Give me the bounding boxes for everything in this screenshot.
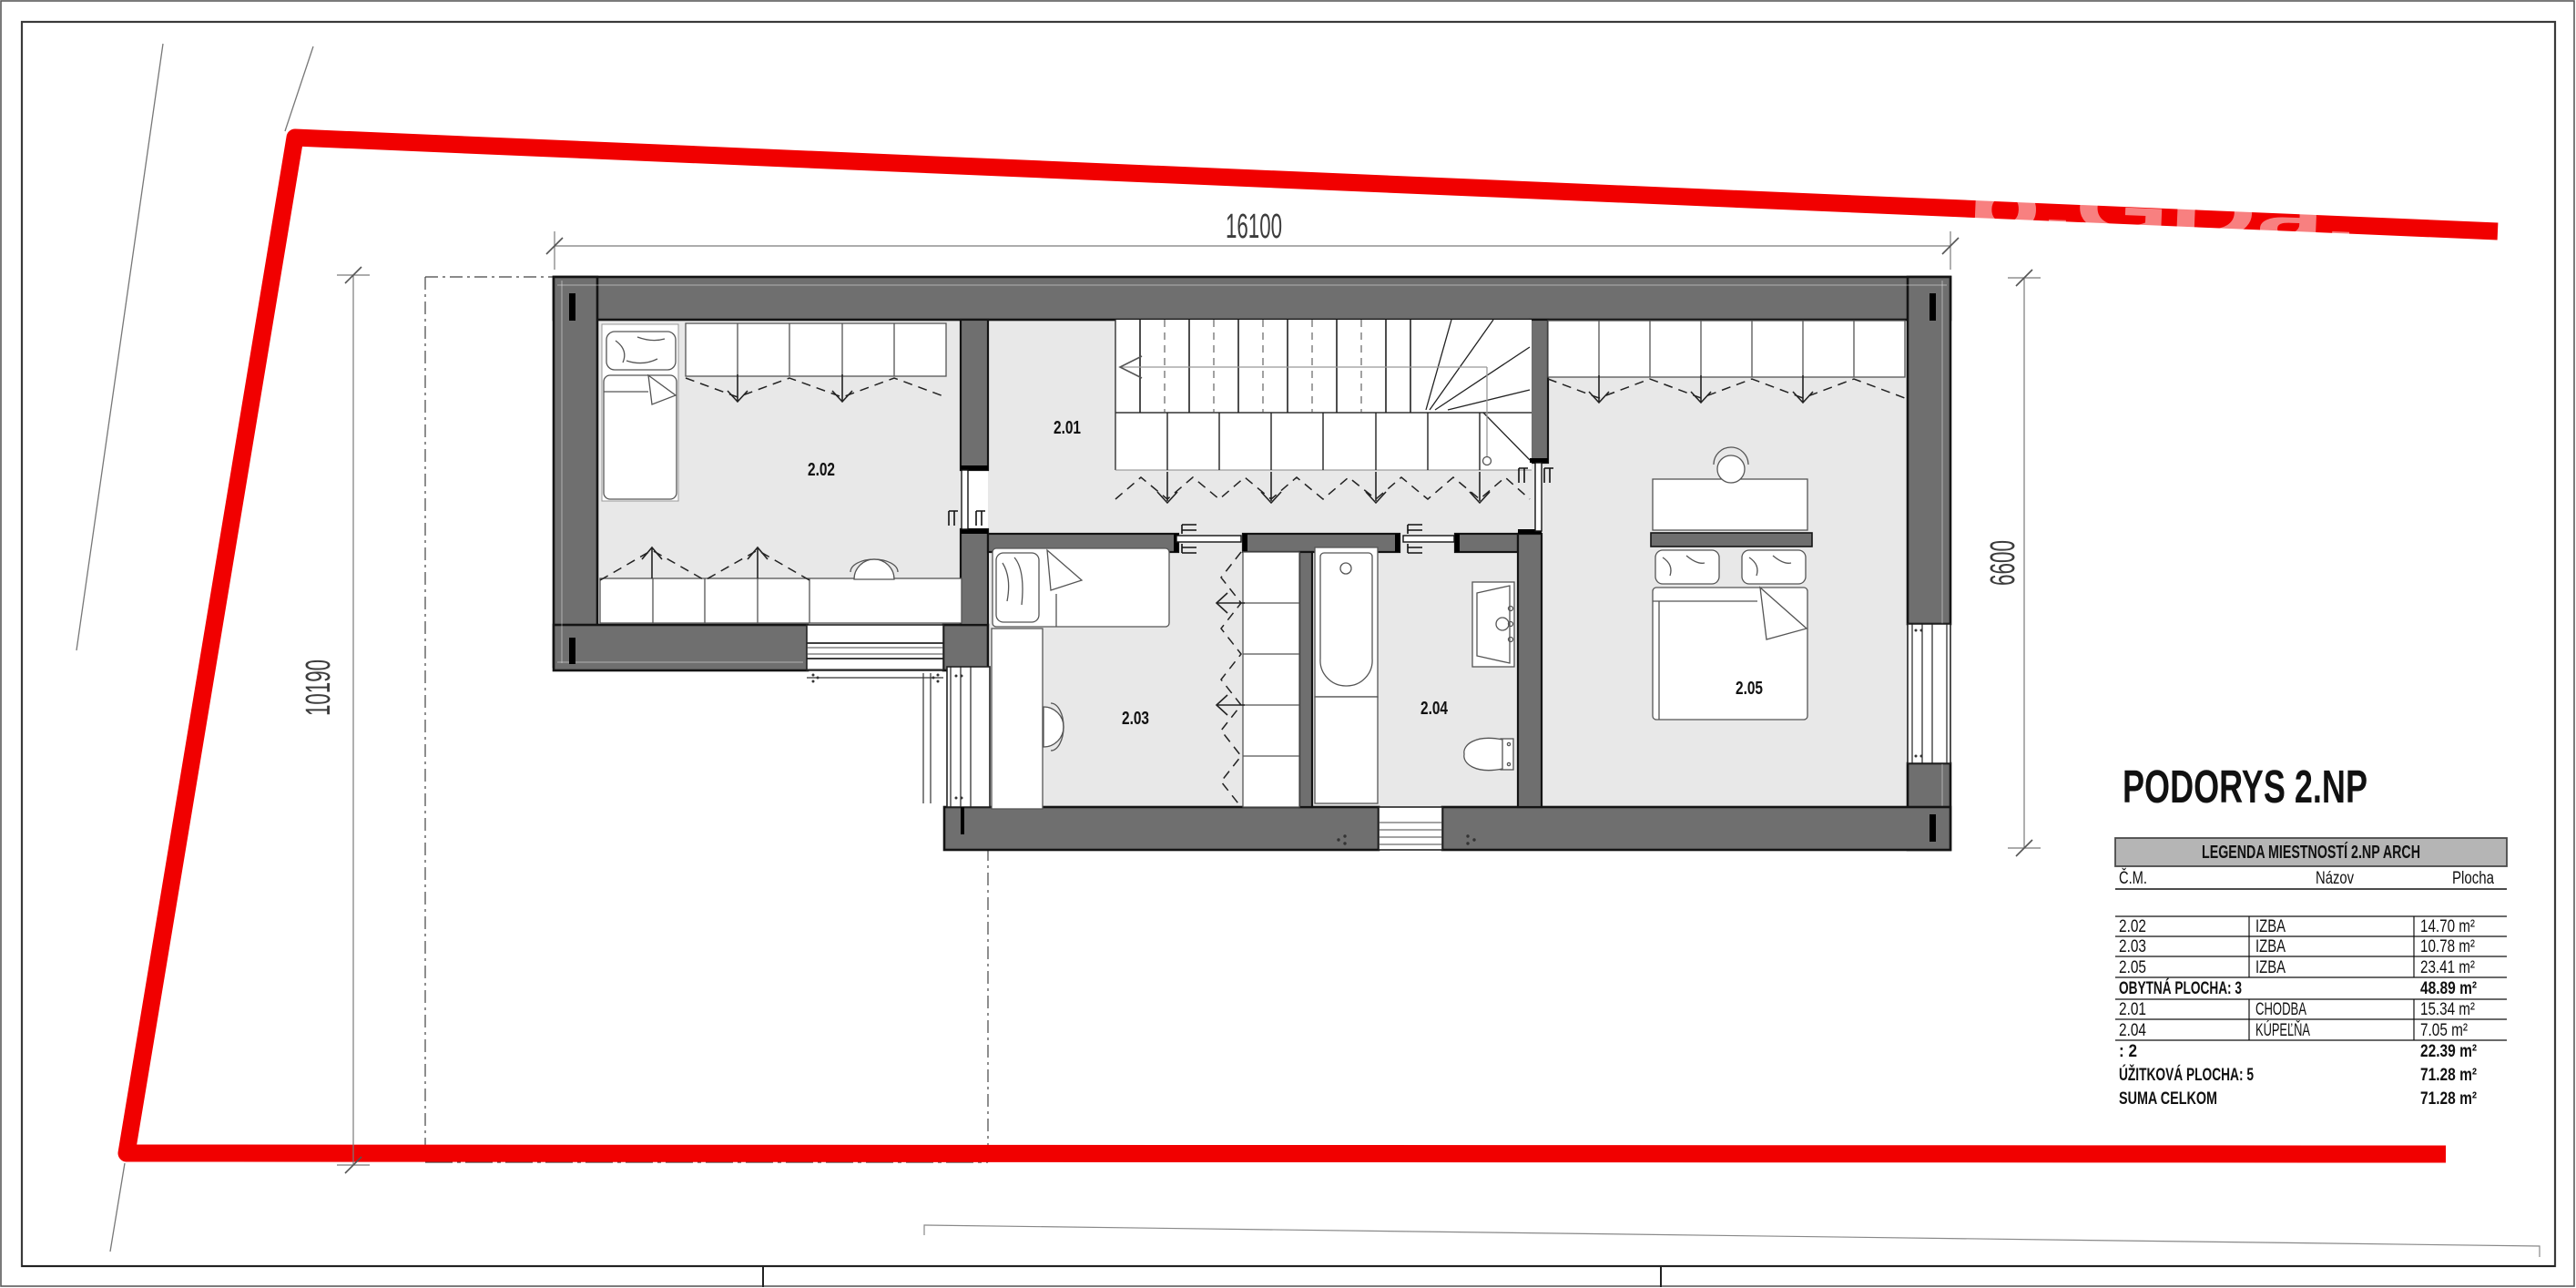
svg-text:SUMA CELKOM: SUMA CELKOM <box>2119 1089 2217 1109</box>
svg-text:2.03: 2.03 <box>1122 709 1149 729</box>
svg-text:IZBA: IZBA <box>2255 937 2286 956</box>
svg-text:48.89 m²: 48.89 m² <box>2420 979 2477 998</box>
svg-text:2.05: 2.05 <box>1736 679 1763 699</box>
svg-text:Plocha: Plocha <box>2452 869 2494 888</box>
svg-text:2.05: 2.05 <box>2119 958 2146 977</box>
svg-text:2.02: 2.02 <box>808 460 835 480</box>
svg-text:OBYTNÁ PLOCHA: 3: OBYTNÁ PLOCHA: 3 <box>2119 978 2242 998</box>
svg-text:2.01: 2.01 <box>2119 1000 2146 1019</box>
svg-text:2.02: 2.02 <box>2119 917 2146 936</box>
svg-text:ÚŽITKOVÁ PLOCHA: 5: ÚŽITKOVÁ PLOCHA: 5 <box>2119 1065 2254 1085</box>
svg-text:LEGENDA MIESTNOSTÍ 2.NP ARCH: LEGENDA MIESTNOSTÍ 2.NP ARCH <box>2202 842 2420 863</box>
svg-text:15.34 m²: 15.34 m² <box>2420 1000 2475 1019</box>
svg-text:2.04: 2.04 <box>2119 1021 2146 1040</box>
svg-text:IZBA: IZBA <box>2255 917 2286 936</box>
svg-text:6600: 6600 <box>1984 540 2022 586</box>
svg-text:PODORYS 2.NP: PODORYS 2.NP <box>2123 761 2367 813</box>
svg-text:b.GDa.: b.GDa. <box>1965 162 2359 259</box>
svg-text:Č.M.: Č.M. <box>2119 868 2147 888</box>
svg-text:Názov: Názov <box>2316 869 2354 888</box>
svg-text:10.78 m²: 10.78 m² <box>2420 937 2475 956</box>
svg-text:16100: 16100 <box>1226 208 1282 246</box>
svg-text:2.03: 2.03 <box>2119 937 2146 956</box>
svg-text:71.28 m²: 71.28 m² <box>2420 1089 2477 1109</box>
svg-text:IZBA: IZBA <box>2255 958 2286 977</box>
svg-text:2.04: 2.04 <box>1420 699 1449 719</box>
svg-text:14.70 m²: 14.70 m² <box>2420 917 2475 936</box>
svg-text:71.28 m²: 71.28 m² <box>2420 1066 2477 1085</box>
svg-text:23.41 m²: 23.41 m² <box>2420 958 2475 977</box>
svg-text:22.39 m²: 22.39 m² <box>2420 1042 2477 1061</box>
svg-text:10190: 10190 <box>300 659 338 716</box>
svg-text:CHODBA: CHODBA <box>2255 1000 2306 1019</box>
svg-text:: 2: : 2 <box>2119 1042 2137 1061</box>
svg-text:2.01: 2.01 <box>1054 418 1081 438</box>
svg-text:KÚPEĽŇA: KÚPEĽŇA <box>2255 1020 2310 1040</box>
svg-text:7.05 m²: 7.05 m² <box>2420 1021 2468 1040</box>
